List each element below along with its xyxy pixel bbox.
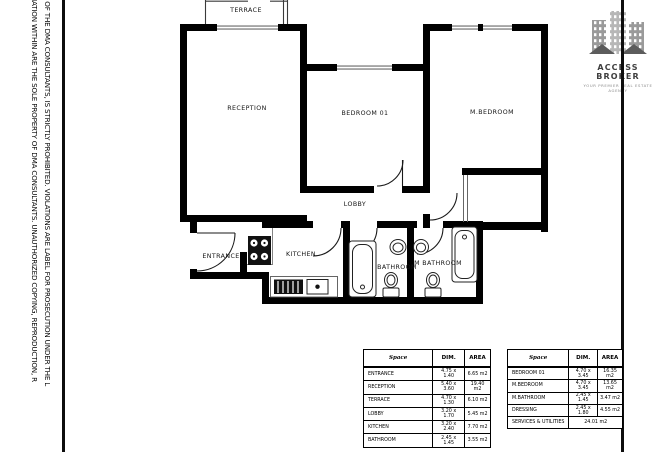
room-label-entrance: ENTRANCE — [202, 253, 239, 260]
room-area: 16.35 m2 — [598, 367, 623, 380]
room-area: 4.55 m2 — [598, 404, 623, 416]
room-area: 6.65 m2 — [465, 367, 491, 381]
room-name: TERRACE — [364, 394, 433, 407]
room-dim: 4.75 x 1.40 — [433, 367, 465, 381]
room-name: ENTRANCE — [364, 367, 433, 381]
room-dim: 5.40 x 3.60 — [433, 381, 465, 394]
room-dim: 2.45 x 1.80 — [569, 404, 598, 416]
area-table-right: Space DIM. AREA BEDROOM 01 4.70 x 3.45 1… — [507, 349, 623, 429]
room-name: DRESSING — [508, 404, 569, 416]
room-dim: 2.45 x 1.45 — [569, 392, 598, 404]
room-dim: 3.20 x 1.70 — [433, 407, 465, 420]
table-row: M.BEDROOM 4.70 x 3.45 13.65 m2 — [508, 380, 623, 392]
room-dim: 3.20 x 2.40 — [433, 421, 465, 434]
toilet-icon — [425, 288, 441, 297]
room-area: 3.55 m2 — [465, 434, 491, 447]
room-name: M.BATHROOM — [508, 392, 569, 404]
room-label-lobby: LOBBY — [344, 201, 366, 208]
footer-label: SERVICES & UTILITIES — [508, 417, 569, 429]
table-header-row: Space DIM. AREA — [364, 350, 491, 368]
room-dim: 4.70 x 3.45 — [569, 367, 598, 380]
header-dim: DIM. — [433, 350, 465, 368]
table-row: BEDROOM 01 4.70 x 3.45 16.35 m2 — [508, 367, 623, 380]
table-row: M.BATHROOM 2.45 x 1.45 3.47 m2 — [508, 392, 623, 404]
kitchen-fixtures — [247, 228, 338, 297]
room-label-mbathroom: M BATHROOM — [414, 260, 462, 267]
room-name: BEDROOM 01 — [508, 367, 569, 380]
header-area: AREA — [598, 350, 623, 368]
toilet-icon — [383, 288, 399, 297]
room-name: KITCHEN — [364, 421, 433, 434]
table-row: KITCHEN 3.20 x 2.40 7.70 m2 — [364, 421, 491, 434]
room-name: LOBBY — [364, 407, 433, 420]
room-label-terrace: TERRACE — [229, 7, 262, 14]
room-area: 19.40 m2 — [465, 381, 491, 394]
door-arc — [197, 233, 235, 271]
table-row: BATHROOM 2.45 x 1.45 3.55 m2 — [364, 434, 491, 447]
room-area: 5.45 m2 — [465, 407, 491, 420]
footer-value: 24.01 m2 — [569, 417, 623, 429]
header-space: Space — [364, 350, 433, 368]
header-area: AREA — [465, 350, 491, 368]
room-area: 6.10 m2 — [465, 394, 491, 407]
table-header-row: Space DIM. AREA — [508, 350, 623, 368]
room-dim: 4.70 x 1.30 — [433, 394, 465, 407]
table-row: DRESSING 2.45 x 1.80 4.55 m2 — [508, 404, 623, 416]
door-arc — [377, 160, 403, 186]
door-arc — [313, 228, 341, 256]
table-row: RECEPTION 5.40 x 3.60 19.40 m2 — [364, 381, 491, 394]
room-name: M.BEDROOM — [508, 380, 569, 392]
room-label-bathroom: BATHROOM — [377, 264, 417, 271]
room-dim: 2.45 x 1.45 — [433, 434, 465, 447]
table-footer-row: SERVICES & UTILITIES 24.01 m2 — [508, 417, 623, 429]
room-label-kitchen: KITCHEN — [286, 251, 316, 258]
table-row: ENTRANCE 4.75 x 1.40 6.65 m2 — [364, 367, 491, 381]
room-dim: 4.70 x 3.45 — [569, 380, 598, 392]
room-label-bedroom01: BEDROOM 01 — [342, 110, 389, 117]
header-dim: DIM. — [569, 350, 598, 368]
room-area: 3.47 m2 — [598, 392, 623, 404]
room-area: 7.70 m2 — [465, 421, 491, 434]
table-row: TERRACE 4.70 x 1.30 6.10 m2 — [364, 394, 491, 407]
room-label-reception: RECEPTION — [227, 105, 267, 112]
door-arc — [430, 193, 457, 220]
room-label-mbedroom: M.BEDROOM — [470, 109, 514, 116]
area-table-left: Space DIM. AREA ENTRANCE 4.75 x 1.40 6.6… — [363, 349, 491, 448]
stove-icon — [248, 236, 271, 265]
table-row: LOBBY 3.20 x 1.70 5.45 m2 — [364, 407, 491, 420]
room-name: BATHROOM — [364, 434, 433, 447]
room-name: RECEPTION — [364, 381, 433, 394]
header-space: Space — [508, 350, 569, 368]
room-area: 13.65 m2 — [598, 380, 623, 392]
